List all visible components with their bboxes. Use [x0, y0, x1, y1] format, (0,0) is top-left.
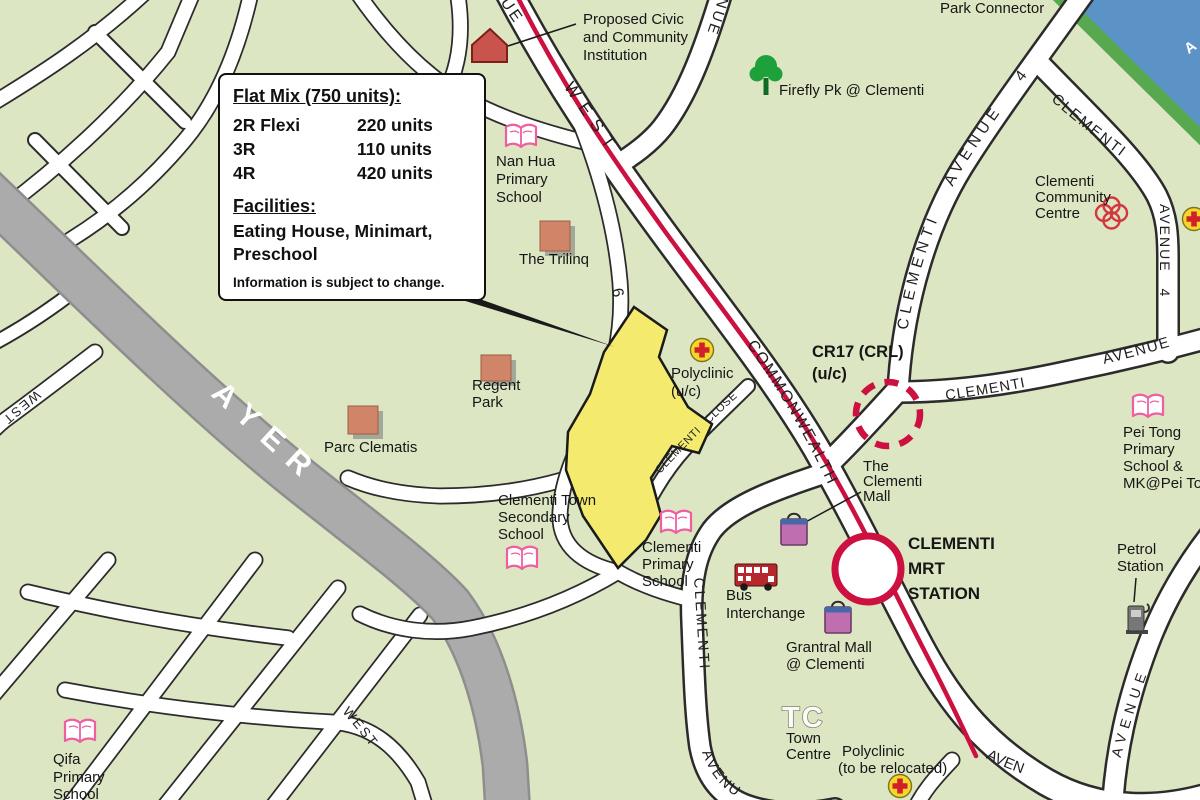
svg-text:Pei Tong: Pei Tong: [1123, 424, 1181, 441]
svg-text:Qifa: Qifa: [53, 751, 81, 768]
flat-mix-title: Flat Mix (750 units):: [233, 86, 471, 107]
clementi-mrt-station-circle: [835, 536, 901, 602]
road-label-avenue-4-vertical: AVENUE 4: [1157, 204, 1173, 298]
qifa-school-icon: [65, 720, 95, 742]
svg-text:Petrol: Petrol: [1117, 541, 1156, 558]
flat-units: 110 units: [357, 137, 432, 161]
flat-type: 3R: [233, 137, 357, 161]
flat-units: 420 units: [357, 161, 433, 185]
svg-text:MK@Pei To: MK@Pei To: [1123, 475, 1200, 492]
clementi-mall-icon: [781, 514, 807, 545]
flat-type: 2R Flexi: [233, 113, 357, 137]
svg-text:School: School: [53, 786, 99, 800]
flat-mix-info-box: Flat Mix (750 units): 2R Flexi 220 units…: [218, 73, 486, 301]
svg-text:School &: School &: [1123, 458, 1183, 475]
svg-text:Clementi Town: Clementi Town: [498, 492, 596, 509]
svg-text:Secondary: Secondary: [498, 509, 570, 526]
svg-text:CR17 (CRL): CR17 (CRL): [812, 343, 904, 361]
svg-text:Community: Community: [1035, 189, 1111, 206]
flat-units: 220 units: [357, 113, 433, 137]
svg-text:STATION: STATION: [908, 584, 980, 603]
grantral-mall-icon: [825, 602, 851, 633]
svg-text:Polyclinic: Polyclinic: [671, 365, 734, 382]
svg-text:(to be relocated): (to be relocated): [838, 760, 947, 777]
clementi-bto-location-map: A: [0, 0, 1200, 800]
svg-text:School: School: [642, 573, 688, 590]
flat-mix-row: 4R 420 units: [233, 161, 471, 185]
svg-text:Primary: Primary: [53, 769, 105, 786]
svg-text:Park Connector: Park Connector: [940, 0, 1044, 17]
pei-tong-school-icon: [1133, 395, 1163, 417]
flat-mix-row: 2R Flexi 220 units: [233, 113, 471, 137]
svg-text:Polyclinic: Polyclinic: [842, 743, 905, 760]
svg-text:Park: Park: [472, 394, 503, 411]
svg-text:Proposed Civic: Proposed Civic: [583, 11, 684, 28]
label-grantral-mall: Grantral Mall @ Clementi: [786, 639, 872, 673]
svg-text:Centre: Centre: [786, 746, 831, 763]
svg-text:Centre: Centre: [1035, 205, 1080, 222]
svg-text:Station: Station: [1117, 558, 1164, 575]
parc-clematis-building-icon: [348, 406, 383, 439]
svg-text:Nan Hua: Nan Hua: [496, 153, 556, 170]
clinic-cross-icon-right-edge: [1183, 208, 1200, 231]
svg-text:Town: Town: [786, 730, 821, 747]
svg-text:Clementi: Clementi: [1035, 173, 1094, 190]
svg-text:The Trilinq: The Trilinq: [519, 251, 589, 268]
clementi-primary-school-icon: [661, 511, 691, 533]
label-parc-clematis: Parc Clematis: [324, 439, 417, 456]
svg-text:School: School: [498, 526, 544, 543]
svg-text:(u/c): (u/c): [671, 383, 701, 400]
svg-text:Interchange: Interchange: [726, 605, 805, 622]
svg-text:Institution: Institution: [583, 47, 647, 64]
svg-text:Bus: Bus: [726, 587, 752, 604]
svg-text:Primary: Primary: [642, 556, 694, 573]
label-the-trilinq: The Trilinq: [519, 251, 589, 268]
svg-text:and Community: and Community: [583, 29, 689, 46]
svg-text:Regent: Regent: [472, 377, 521, 394]
town-sec-school-icon: [507, 547, 537, 569]
map-svg: A: [0, 0, 1200, 800]
label-firefly-park: Firefly Pk @ Clementi: [779, 82, 924, 99]
svg-text:@ Clementi: @ Clementi: [786, 656, 865, 673]
svg-text:Primary: Primary: [496, 171, 548, 188]
svg-text:(u/c): (u/c): [812, 365, 847, 383]
svg-text:CLEMENTI: CLEMENTI: [908, 534, 995, 553]
polyclinic-uc-cross-icon: [691, 339, 714, 362]
svg-text:Clementi: Clementi: [642, 539, 701, 556]
flat-mix-row: 3R 110 units: [233, 137, 471, 161]
svg-text:MRT: MRT: [908, 559, 945, 578]
nan-hua-school-icon: [506, 125, 536, 147]
svg-text:Primary: Primary: [1123, 441, 1175, 458]
label-park-connector: Park Connector: [940, 0, 1044, 17]
svg-text:Grantral Mall: Grantral Mall: [786, 639, 872, 656]
info-disclaimer: Information is subject to change.: [233, 275, 471, 290]
svg-text:Parc Clematis: Parc Clematis: [324, 439, 417, 456]
facilities-list: Eating House, Minimart, Preschool: [233, 220, 471, 266]
polyclinic-reloc-cross-icon: [889, 775, 912, 798]
facilities-title: Facilities:: [233, 196, 471, 217]
flat-type: 4R: [233, 161, 357, 185]
svg-text:Firefly Pk @ Clementi: Firefly Pk @ Clementi: [779, 82, 924, 99]
svg-text:Mall: Mall: [863, 488, 891, 505]
svg-text:School: School: [496, 189, 542, 206]
